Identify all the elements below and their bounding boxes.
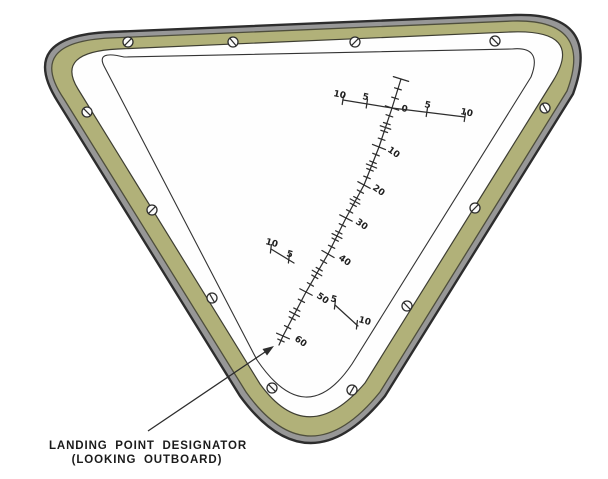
caption-line-1: LANDING POINT DESIGNATOR — [49, 440, 247, 452]
lpd-window-diagram: 0102030405060105510105510 LANDING POINT … — [0, 0, 608, 479]
caption-line-2: (LOOKING OUTBOARD) — [72, 454, 223, 466]
lpd-window-figure: 0102030405060105510105510 LANDING POINT … — [0, 0, 608, 479]
